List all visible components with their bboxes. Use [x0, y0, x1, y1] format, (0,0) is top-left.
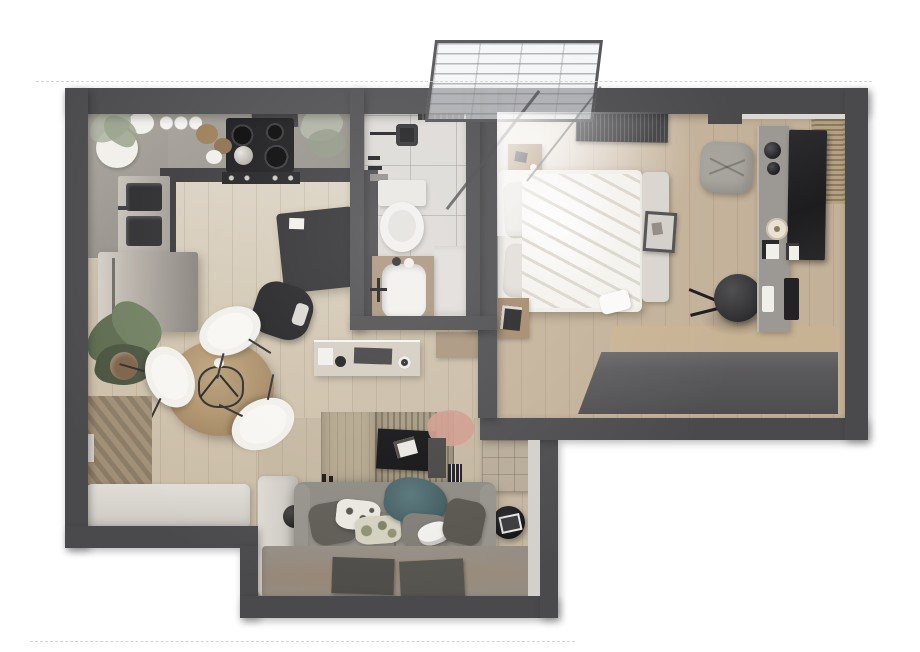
- paper-on-desk: [289, 218, 304, 230]
- vanity-faucet-horizontal: [370, 288, 387, 291]
- desk-box-b: [786, 243, 799, 260]
- tv-picture: [393, 437, 418, 459]
- tv-screen: [376, 429, 436, 472]
- tray-dot: [774, 226, 780, 232]
- console-table: [314, 340, 420, 376]
- apartment-floorplan: [0, 0, 920, 652]
- wall-bedroom-left: [478, 88, 497, 418]
- desk-tray: [766, 218, 788, 240]
- tablet-on-nightstand: [500, 305, 522, 331]
- console-tray: [354, 347, 393, 364]
- wall-bedroom-bottom: [480, 418, 868, 440]
- cooktop: [226, 118, 294, 172]
- wall-left: [65, 88, 88, 548]
- floor-mat-left: [331, 557, 394, 595]
- shower-knob-a: [368, 156, 380, 160]
- wire-line: [219, 375, 238, 397]
- desk-knob-small: [767, 162, 780, 175]
- wood-cabinet: [436, 332, 478, 358]
- dashed-artifact-top: [36, 81, 872, 82]
- sink-basin-top: [126, 183, 162, 211]
- table-wire-decor: [198, 366, 244, 408]
- desk-item-dark: [784, 278, 799, 320]
- console-white-cup: [398, 356, 411, 369]
- dark-glass-panel: [787, 130, 827, 261]
- round-side-table: [492, 506, 525, 539]
- vanity-basin: [382, 264, 426, 318]
- wall-column-stub: [708, 112, 742, 124]
- toilet-bowl: [380, 202, 424, 252]
- dark-box: [428, 438, 446, 478]
- soap-dark: [392, 257, 401, 266]
- desk-knob-large: [764, 142, 781, 159]
- desk-item-white: [762, 286, 774, 312]
- dashed-artifact-bottom: [30, 641, 575, 642]
- office-chair-armpad: [291, 302, 310, 327]
- glass-sheen: [497, 112, 667, 236]
- wall-right: [845, 88, 868, 440]
- cups-row: [160, 114, 202, 132]
- wall-bathroom-bottom: [350, 316, 497, 330]
- wall-bathroom-left: [350, 88, 364, 330]
- wardrobe: [578, 352, 838, 414]
- soap-white: [404, 258, 414, 268]
- bowl-on-counter: [206, 150, 222, 164]
- photo-frame-on-table: [498, 513, 522, 534]
- sink-basin-bottom: [126, 216, 162, 246]
- console-black-cup: [335, 356, 346, 367]
- wall-innerface-top-right: [742, 114, 845, 119]
- round-stool: [714, 274, 762, 322]
- kettle: [234, 146, 253, 165]
- sink-unit: [118, 176, 170, 254]
- nightstand-bottom: [495, 298, 529, 338]
- bench-horizontal: [86, 484, 250, 528]
- wall-dining-bottom: [65, 526, 258, 548]
- wall-innerface-living-right: [528, 440, 540, 596]
- wall-living-right: [540, 440, 558, 618]
- oven-front: [222, 172, 300, 184]
- wall-bathroom-right: [466, 88, 480, 330]
- office-desk: [276, 206, 360, 294]
- toilet-seat-inner: [388, 210, 416, 242]
- shower-head: [396, 124, 418, 146]
- desk-box-a: [762, 240, 779, 259]
- wall-living-bottom: [240, 596, 558, 618]
- sink-faucet: [118, 206, 128, 210]
- floor-mat-right: [399, 558, 465, 599]
- shower-knob-b: [368, 166, 382, 170]
- pouf: [699, 141, 755, 195]
- console-box: [318, 348, 333, 365]
